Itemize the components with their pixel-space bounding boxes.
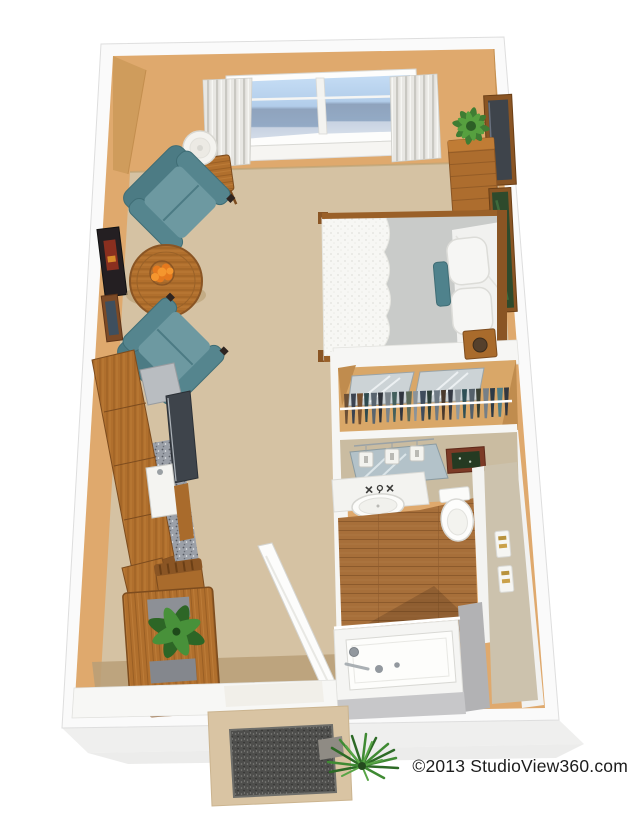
bed-pillow-1 [446,236,491,286]
floor-plan-rendering [0,0,640,826]
bed-comforter [322,218,391,360]
doormat [230,725,336,797]
dining-table [123,587,220,693]
bedside-table [463,329,497,360]
copyright-text: ©2013 StudioView360.com [368,756,628,777]
bed-pillow-2 [450,287,493,336]
apartment-floor-plan: ©2013 StudioView360.com [0,0,640,826]
curtain-right [390,74,441,162]
kitchen-faucet [157,469,163,475]
bed-headboard [497,210,507,360]
placemat-bottom [149,658,196,683]
